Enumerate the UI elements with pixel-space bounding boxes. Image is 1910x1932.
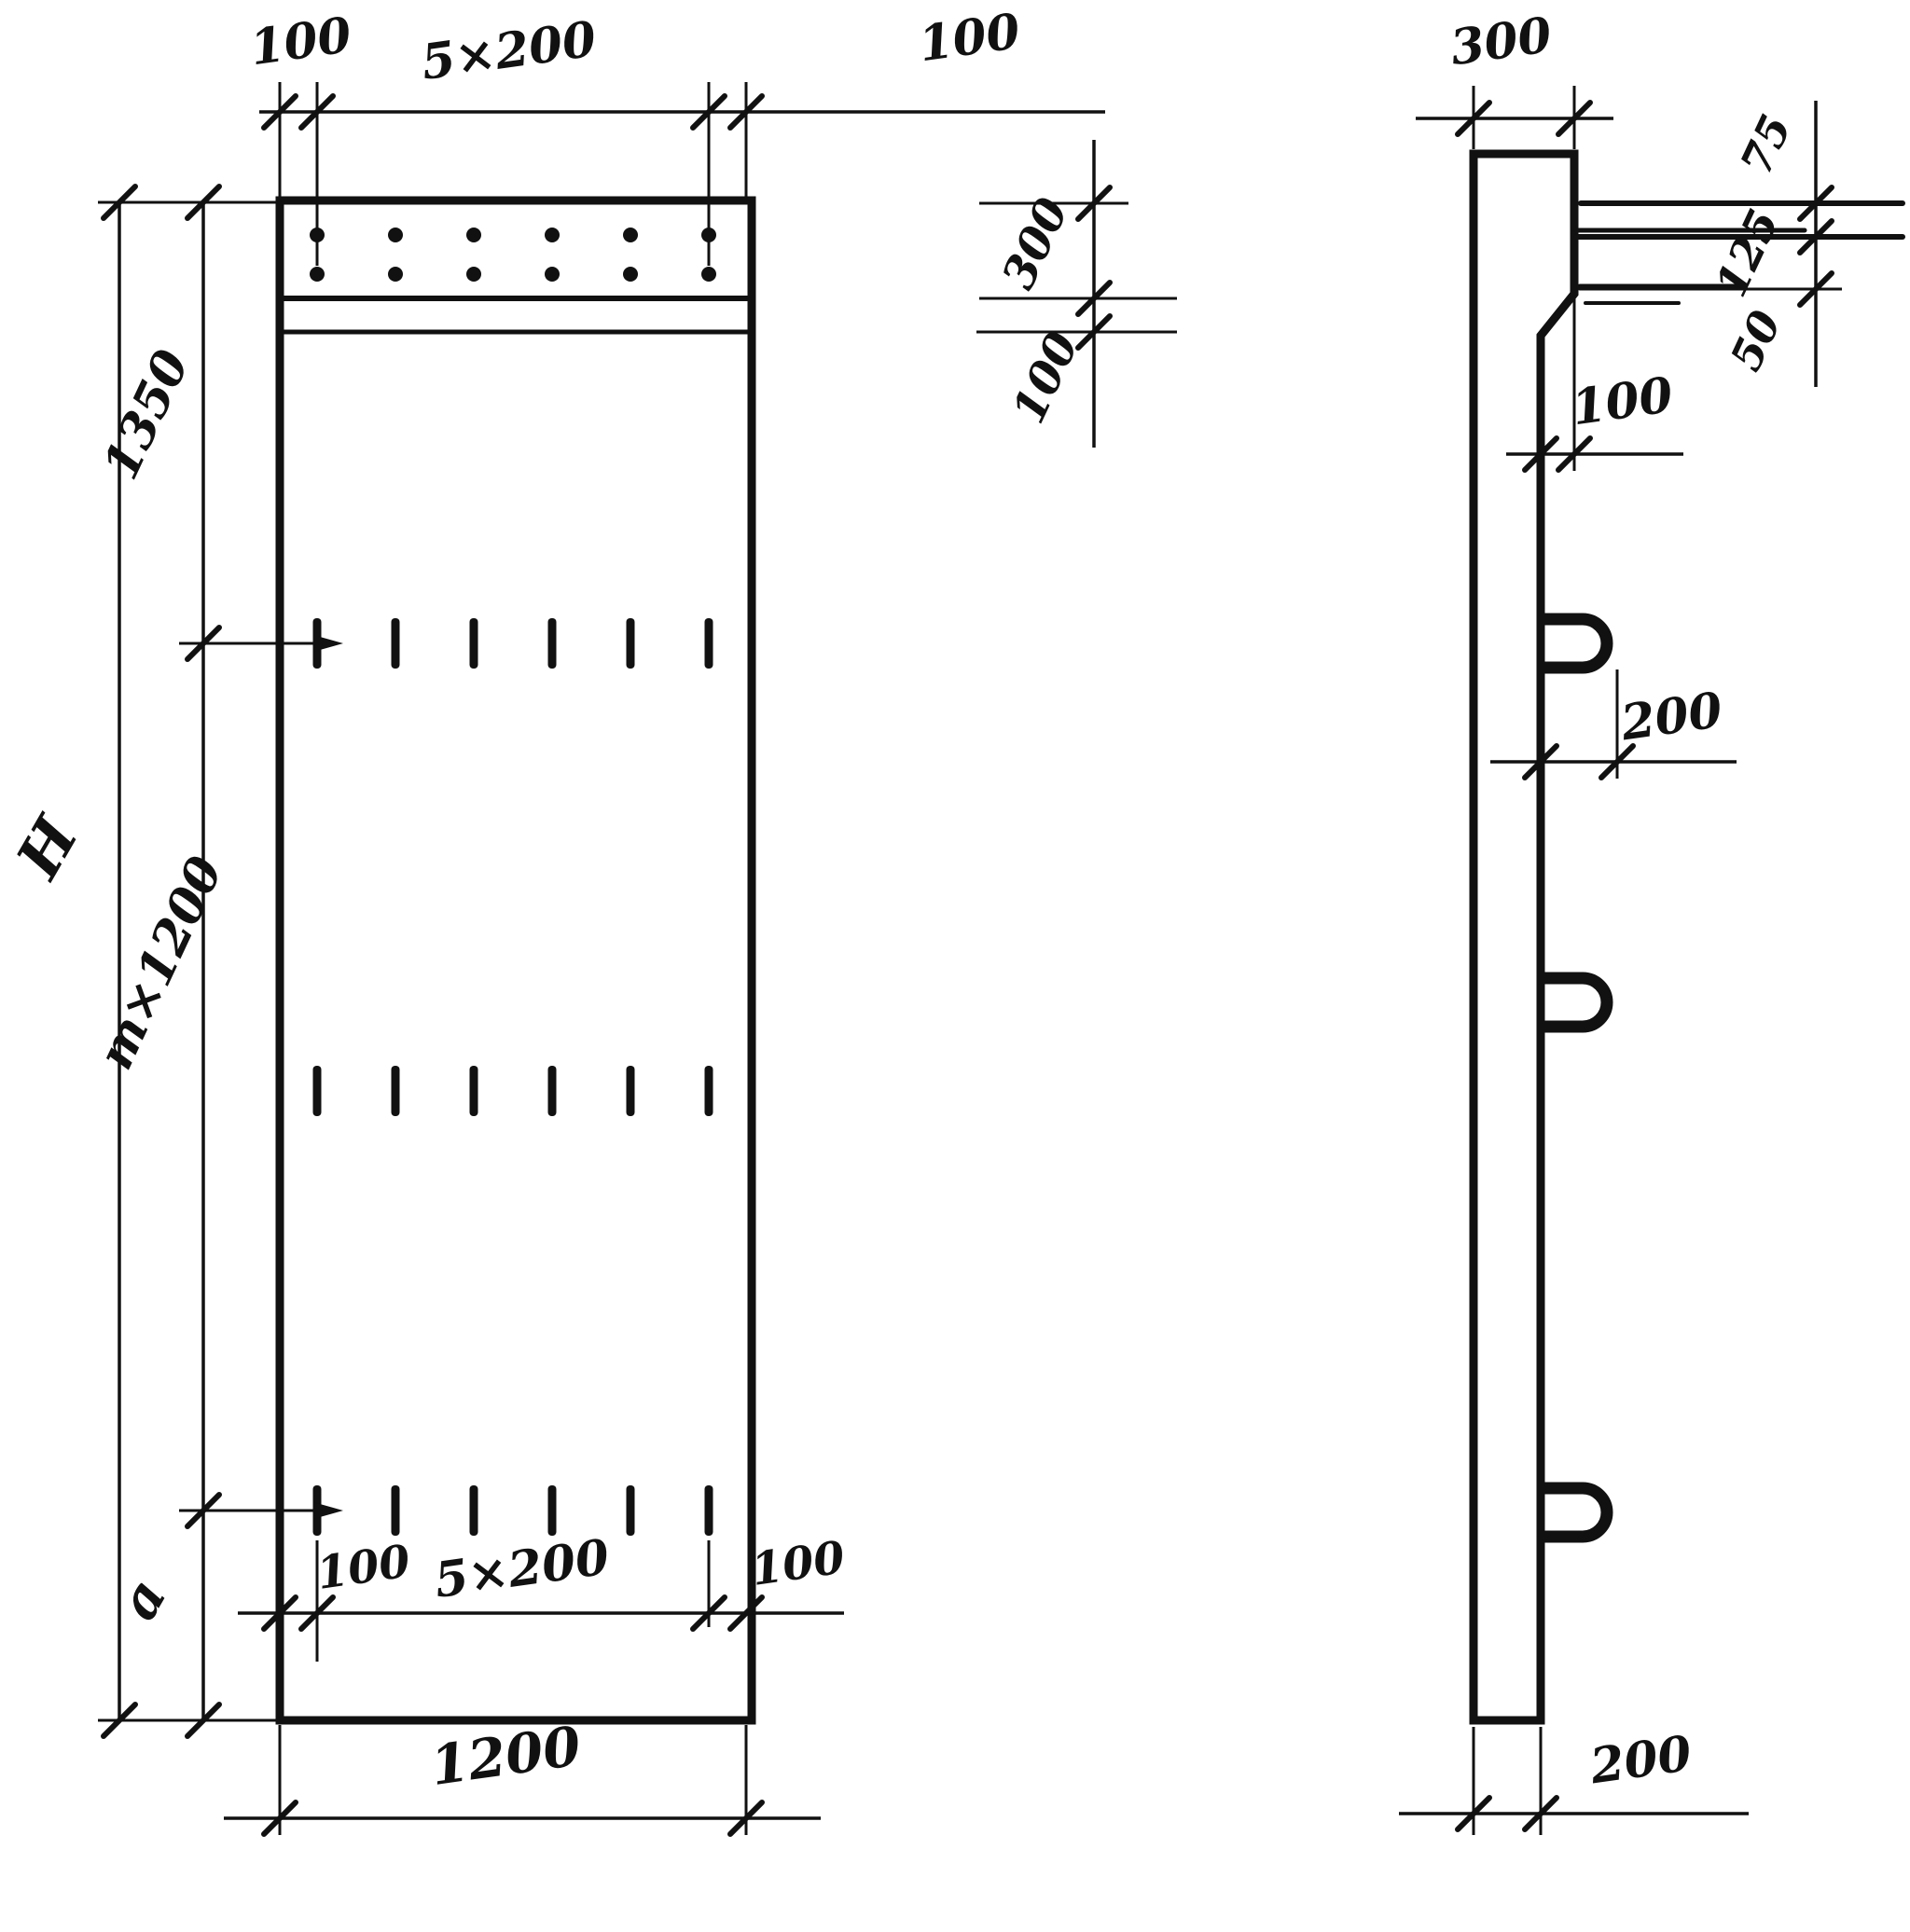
slot-dash [627,618,635,669]
anchor-dot [545,267,560,282]
side-chamfer-dimension: 100 [1506,294,1683,471]
slot-dash [313,1066,322,1116]
slot-dash [548,1066,557,1116]
anchor-dot [623,267,638,282]
dim-label-bottom-right: 100 [748,1531,848,1595]
anchor-dot [388,267,403,282]
lifting-loop [1541,1488,1607,1537]
anchor-dots [310,228,716,282]
side-bar-dimensions: 75 125 50 [1706,101,1832,387]
anchor-dot [701,267,716,282]
slot-dash [627,1485,635,1536]
slot-dash [548,1485,557,1536]
slot-dash [392,618,400,669]
anchor-dot [623,228,638,242]
front-band-dimension: 300 100 [976,140,1177,448]
slot-dash [470,1485,478,1536]
side-view: 75 125 50 300 100 [1399,7,1903,1835]
lifting-loop [1541,978,1607,1027]
dim-label-height-middle: m×1200 [87,848,234,1077]
side-bottom-width-dimension: 200 [1399,1725,1749,1835]
drawing-sheet: 100 5×200 100 300 100 [0,0,1910,1932]
side-top-width-dimension: 300 [1416,7,1613,149]
slot-dash [470,618,478,669]
anchor-dot [466,267,481,282]
slot-rows [313,618,713,1536]
dim-label-strip-height: 100 [1003,324,1089,431]
dim-label-loop-length: 200 [1617,682,1726,752]
dim-label-width: 1200 [427,1714,585,1798]
lifting-loop [1541,619,1607,668]
anchor-dot [466,228,481,242]
panel-outline [280,200,752,1720]
leader-arrow [313,1502,343,1519]
dim-label-chamfer: 100 [1569,366,1677,437]
slot-dash [627,1066,635,1116]
lifting-loops [1541,619,1607,1537]
dim-label-bottom-width: 200 [1586,1725,1695,1796]
leader-arrow [313,635,343,652]
slot-dash [392,1066,400,1116]
front-width-dimension: 1200 [224,1714,821,1835]
dim-label-top-width: 300 [1447,7,1556,77]
dim-label-height-bottom: a [106,1568,179,1631]
dim-label-bottom-spacing: 5×200 [431,1528,613,1609]
dim-label-height-top: 1350 [92,341,201,488]
dim-label-top-left: 100 [247,7,355,77]
front-view: 100 5×200 100 300 100 [3,3,1177,1835]
slot-dash [705,618,713,669]
dim-label-total-height: H [3,804,93,891]
slot-dash [705,1066,713,1116]
slot-dash [392,1485,400,1536]
anchor-dot [545,228,560,242]
dim-label-bar-top: 75 [1731,107,1802,183]
front-left-dimensions: H 1350 m×1200 a [3,186,343,1736]
side-loop-dimension: 200 [1490,669,1737,779]
dim-label-top-right: 100 [916,3,1024,74]
slot-dash [548,618,557,669]
slot-dash [470,1066,478,1116]
dim-label-bottom-left: 100 [313,1535,413,1599]
slot-dash [705,1485,713,1536]
dim-label-bar-bottom: 50 [1721,303,1792,379]
front-top-dimension: 100 5×200 100 [247,3,1105,266]
front-bottom-spacing-dimension: 100 5×200 100 [238,1528,848,1662]
panel-drawing-svg: 100 5×200 100 300 100 [0,0,1910,1932]
dim-label-top-spacing: 5×200 [418,10,600,91]
anchor-dot [388,228,403,242]
dim-label-band-height: 300 [992,190,1079,297]
anchor-dot [310,267,325,282]
